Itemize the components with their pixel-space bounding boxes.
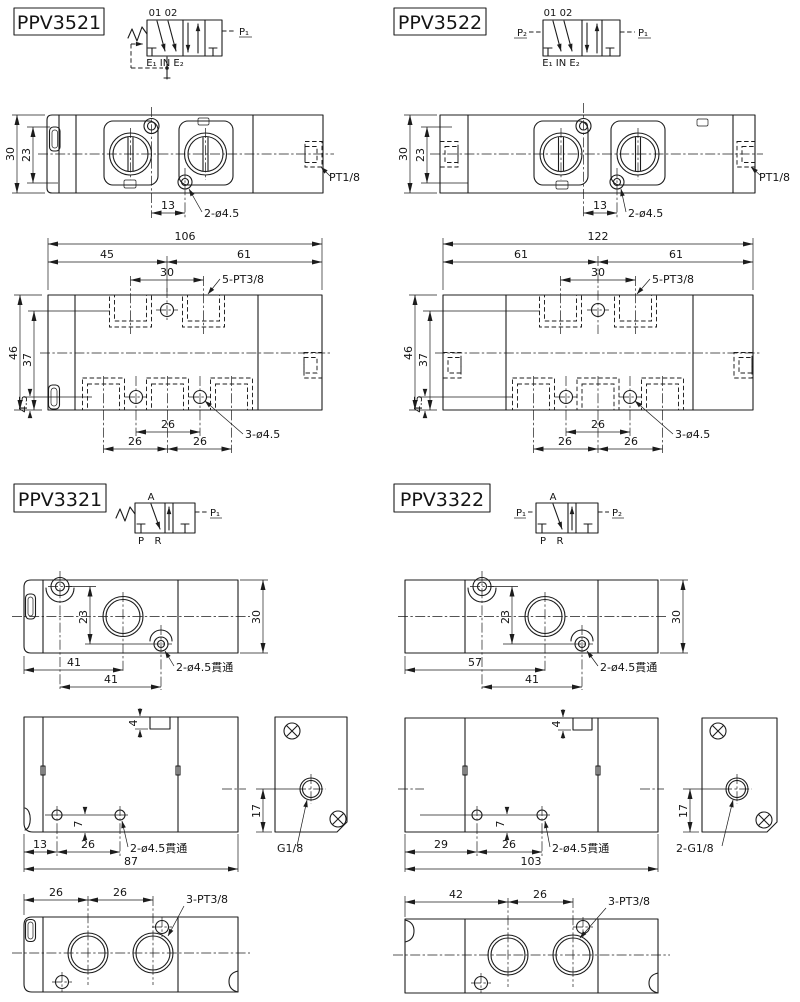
dim-label: 13 <box>161 199 175 212</box>
symbol-right-port: P₁ <box>638 28 648 39</box>
flow-arrow <box>564 21 572 51</box>
top-notch <box>150 717 170 729</box>
dim-label: 26 <box>591 418 605 431</box>
dim-label: 61 <box>237 248 251 261</box>
dim-label: 37 <box>417 353 430 367</box>
edge-notch <box>405 920 414 942</box>
dim-label: 42 <box>449 888 463 901</box>
dim-label: 26 <box>113 886 127 899</box>
dim-label: 26 <box>193 435 207 448</box>
dim-label: 61 <box>669 248 683 261</box>
dim-label: 4.5 <box>412 395 425 413</box>
hole-callout: 2-ø4.5 <box>628 207 663 220</box>
dim-label: 26 <box>502 838 516 851</box>
dim-label: 30 <box>670 610 683 624</box>
hole-callout: 3-ø4.5 <box>245 428 280 441</box>
page-title: PPV3321 <box>18 489 102 511</box>
hole-callout: 2-ø4.5貫通 <box>600 661 657 674</box>
dim-label: 13 <box>33 838 47 851</box>
dim-label: 87 <box>124 855 138 868</box>
side-port-dashed <box>304 353 322 379</box>
ppv3322-side-view: 17 2-G1/8 <box>676 718 777 855</box>
dim-label: 41 <box>104 673 118 686</box>
dim-label: 7 <box>494 821 507 828</box>
ppv3321-title-box: PPV3321 <box>14 484 106 512</box>
symbol-bottom-ports: E₁ IN E₂ <box>146 58 183 69</box>
dim-label: 23 <box>499 610 512 624</box>
phillips-screw-icon <box>710 723 726 739</box>
hole-callout: 2-ø4.5貫通 <box>552 842 609 855</box>
dim-label: 13 <box>593 199 607 212</box>
edge-notch <box>649 973 658 993</box>
valve-drawing-canvas: PPV3521 01 02 P₁ E₁ IN E₂ <box>0 0 800 1002</box>
exhaust-icon <box>137 524 145 533</box>
symbol-right-port: P₁ <box>210 508 220 519</box>
side-port-dashed <box>443 353 461 379</box>
dim-label: 29 <box>434 838 448 851</box>
dim-label: 30 <box>4 147 17 161</box>
symbol-top-ports: 01 02 <box>149 8 178 19</box>
ppv3521-title-box: PPV3521 <box>14 8 104 35</box>
ppv3521-valve-symbol: 01 02 P₁ E₁ IN E₂ <box>128 8 252 79</box>
dim-label: 103 <box>521 855 542 868</box>
symbol-right-port: P₁ <box>239 27 249 38</box>
dim-label: 26 <box>161 418 175 431</box>
dim-label: 4 <box>127 720 140 727</box>
dim-label: 7 <box>72 821 85 828</box>
symbol-port-p: P <box>540 536 546 547</box>
port-callout: 2-G1/8 <box>676 842 714 855</box>
ppv3522-group: PPV3522 01 02 P₂ P₁ E₁ IN E₂ <box>394 8 790 453</box>
dim-label: 30 <box>160 266 174 279</box>
symbol-left-port: P₂ <box>517 28 527 39</box>
drawing-sheet: PPV3521 01 02 P₁ E₁ IN E₂ <box>0 0 800 1002</box>
exhaust-icon <box>148 48 156 56</box>
ppv3522-manifold-view: 122 61 61 30 5-PT3/8 46 37 4.5 26 26 26 … <box>402 230 761 453</box>
dim-label: 122 <box>588 230 609 243</box>
symbol-right-port: P₂ <box>612 508 622 519</box>
phillips-screw-icon <box>330 811 346 827</box>
dim-label: 26 <box>128 435 142 448</box>
port-callout: 5-PT3/8 <box>222 273 264 286</box>
hole-callout: 2-ø4.5貫通 <box>176 661 233 674</box>
exhaust-icon <box>584 524 592 533</box>
ppv3522-plan-view: 30 23 13 2-ø4.5 PT1/8 <box>397 103 790 220</box>
spring-icon <box>116 507 135 521</box>
exhaust-icon <box>538 524 546 533</box>
flow-arrow <box>168 21 176 51</box>
page-title: PPV3522 <box>398 12 482 34</box>
dim-label: 23 <box>414 148 427 162</box>
ppv3322-valve-symbol: A P₁ P₂ P R <box>514 492 624 547</box>
dim-label: 26 <box>558 435 572 448</box>
exhaust-icon <box>181 524 189 533</box>
dim-label: 61 <box>514 248 528 261</box>
ppv3321-plan-view: 23 30 41 41 2-ø4.5貫通 <box>12 571 268 690</box>
symbol-top-ports: 01 02 <box>544 8 573 19</box>
dim-label: 41 <box>525 673 539 686</box>
phillips-screw-icon <box>756 812 772 828</box>
dim-label: 4.5 <box>17 395 30 413</box>
ppv3522-title-box: PPV3522 <box>394 8 486 35</box>
ppv3521-group: PPV3521 01 02 P₁ E₁ IN E₂ <box>4 8 360 453</box>
dim-label: 45 <box>100 248 114 261</box>
spring-icon <box>128 27 147 41</box>
marker-plate <box>124 180 136 188</box>
symbol-body <box>536 503 598 533</box>
dim-label: 17 <box>250 804 263 818</box>
phillips-screw-icon <box>284 723 300 739</box>
ppv3322-group: PPV3322 A P₁ P₂ P R 23 30 57 <box>393 484 777 993</box>
manual-override <box>26 920 36 942</box>
dim-label: 37 <box>21 353 34 367</box>
manual-override <box>26 594 36 619</box>
flow-arrow <box>157 21 165 51</box>
port-callout: PT1/8 <box>759 171 790 184</box>
hole-callout: 3-ø4.5 <box>675 428 710 441</box>
side-port-dashed <box>734 353 752 379</box>
dim-label: 57 <box>468 656 482 669</box>
flow-arrow <box>553 504 562 529</box>
ppv3321-valve-symbol: A P₁ P R <box>116 492 222 547</box>
dim-label: 46 <box>7 346 20 360</box>
symbol-port-r: R <box>557 536 564 547</box>
port-callout: G1/8 <box>277 842 303 855</box>
dim-label: 46 <box>402 346 415 360</box>
dim-label: 30 <box>591 266 605 279</box>
flow-arrow <box>151 504 160 529</box>
ppv3521-manifold-view: 106 45 61 30 5-PT3/8 46 37 4.5 26 26 26 … <box>7 230 332 453</box>
page-title: PPV3521 <box>17 12 101 34</box>
exhaust-icon <box>606 48 614 56</box>
dim-label: 30 <box>250 610 263 624</box>
dim-label: 26 <box>81 838 95 851</box>
top-notch <box>573 718 592 730</box>
ppv3521-plan-view: 30 23 13 2-ø4.5 PT1/8 <box>4 107 360 220</box>
dim-label: 26 <box>533 888 547 901</box>
dim-label: 106 <box>175 230 196 243</box>
ppv3322-front-view: 4 7 29 26 2-ø4.5貫通 103 <box>398 709 664 872</box>
page-title: PPV3322 <box>400 489 484 511</box>
symbol-port-p: P <box>138 536 144 547</box>
port-callout: 3-PT3/8 <box>608 895 650 908</box>
port-callout: PT1/8 <box>329 171 360 184</box>
dim-label: 26 <box>624 435 638 448</box>
hole-callout: 2-ø4.5貫通 <box>130 842 187 855</box>
ppv3321-side-view: 17 G1/8 <box>250 717 347 855</box>
dim-label: 30 <box>397 147 410 161</box>
dim-label: 23 <box>77 610 90 624</box>
ppv3321-bottom-view: 26 26 3-PT3/8 <box>12 886 250 992</box>
symbol-top-port: A <box>148 492 155 503</box>
exhaust-icon <box>209 48 217 56</box>
port-callout: 3-PT3/8 <box>186 893 228 906</box>
marker-plate <box>697 119 708 126</box>
symbol-top-port: A <box>550 492 557 503</box>
manual-override <box>50 127 61 151</box>
symbol-bottom-ports: E₁ IN E₂ <box>542 58 579 69</box>
hole-callout: 2-ø4.5 <box>204 207 239 220</box>
dim-label: 41 <box>67 656 81 669</box>
ppv3321-group: PPV3321 A P₁ P R 23 30 41 <box>12 484 347 992</box>
symbol-port-r: R <box>155 536 162 547</box>
ppv3321-front-view: 4 7 13 26 2-ø4.5貫通 87 <box>24 708 246 872</box>
dim-label: 4 <box>550 721 563 728</box>
manifold-outline <box>48 295 322 410</box>
dim-label: 17 <box>677 804 690 818</box>
ppv3322-title-box: PPV3322 <box>394 484 490 512</box>
ppv3322-plan-view: 23 30 57 41 2-ø4.5貫通 <box>398 571 688 690</box>
exhaust-icon <box>544 48 552 56</box>
ppv3322-bottom-view: 42 26 3-PT3/8 <box>393 888 670 993</box>
valve-body-outline <box>405 919 658 993</box>
dim-label: 23 <box>20 148 33 162</box>
symbol-left-port: P₁ <box>516 508 526 519</box>
dim-label: 26 <box>49 886 63 899</box>
flow-arrow <box>553 21 561 51</box>
edge-notch <box>229 971 238 992</box>
manual-override <box>25 808 30 830</box>
port-callout: 5-PT3/8 <box>652 273 694 286</box>
ppv3522-valve-symbol: 01 02 P₂ P₁ E₁ IN E₂ <box>514 8 651 69</box>
